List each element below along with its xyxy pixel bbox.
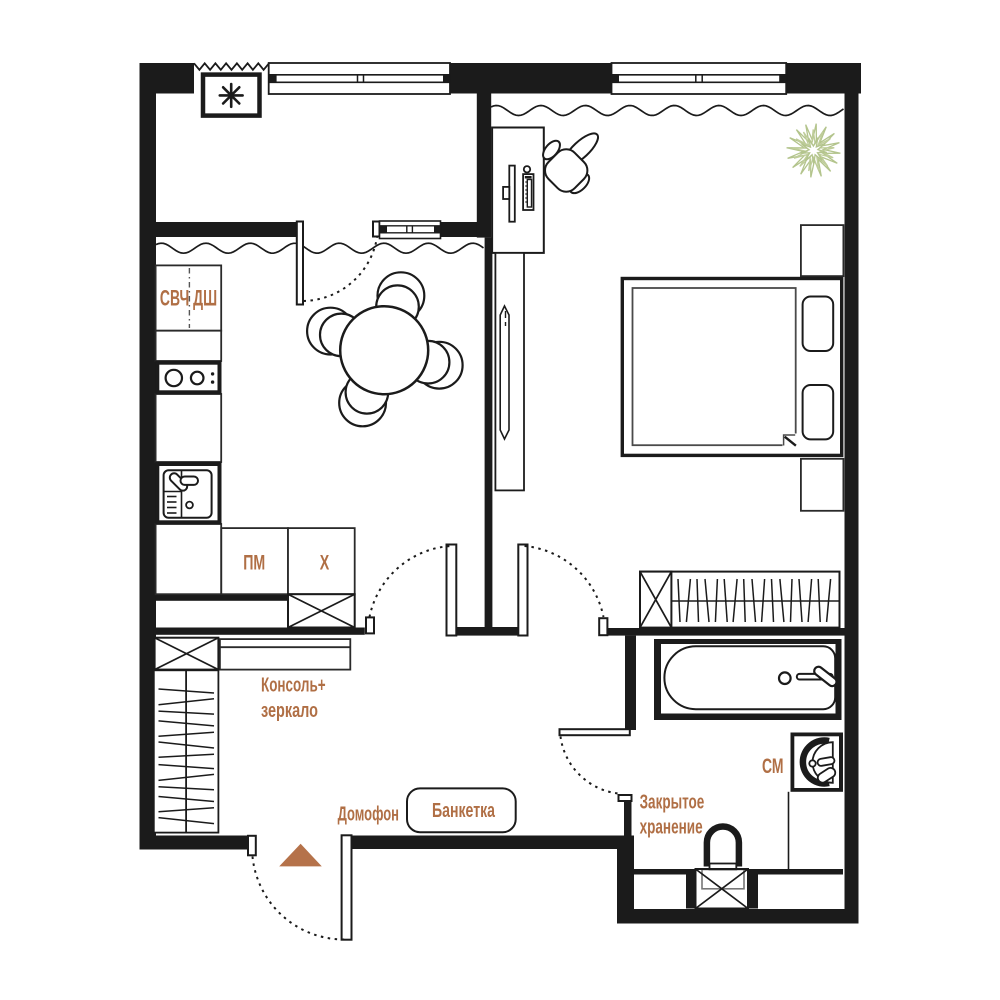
svg-text:СВЧ ДШ: СВЧ ДШ bbox=[160, 286, 217, 311]
svg-text:Консоль+: Консоль+ bbox=[261, 674, 326, 697]
svg-text:Банкетка: Банкетка bbox=[432, 800, 496, 822]
svg-text:хранение: хранение bbox=[640, 816, 703, 839]
svg-text:Закрытое: Закрытое bbox=[640, 791, 705, 814]
svg-text:Домофон: Домофон bbox=[338, 804, 399, 826]
svg-text:Х: Х bbox=[320, 552, 330, 575]
svg-text:ПМ: ПМ bbox=[243, 552, 265, 575]
svg-text:зеркало: зеркало bbox=[261, 699, 318, 722]
svg-text:СМ: СМ bbox=[762, 755, 784, 778]
